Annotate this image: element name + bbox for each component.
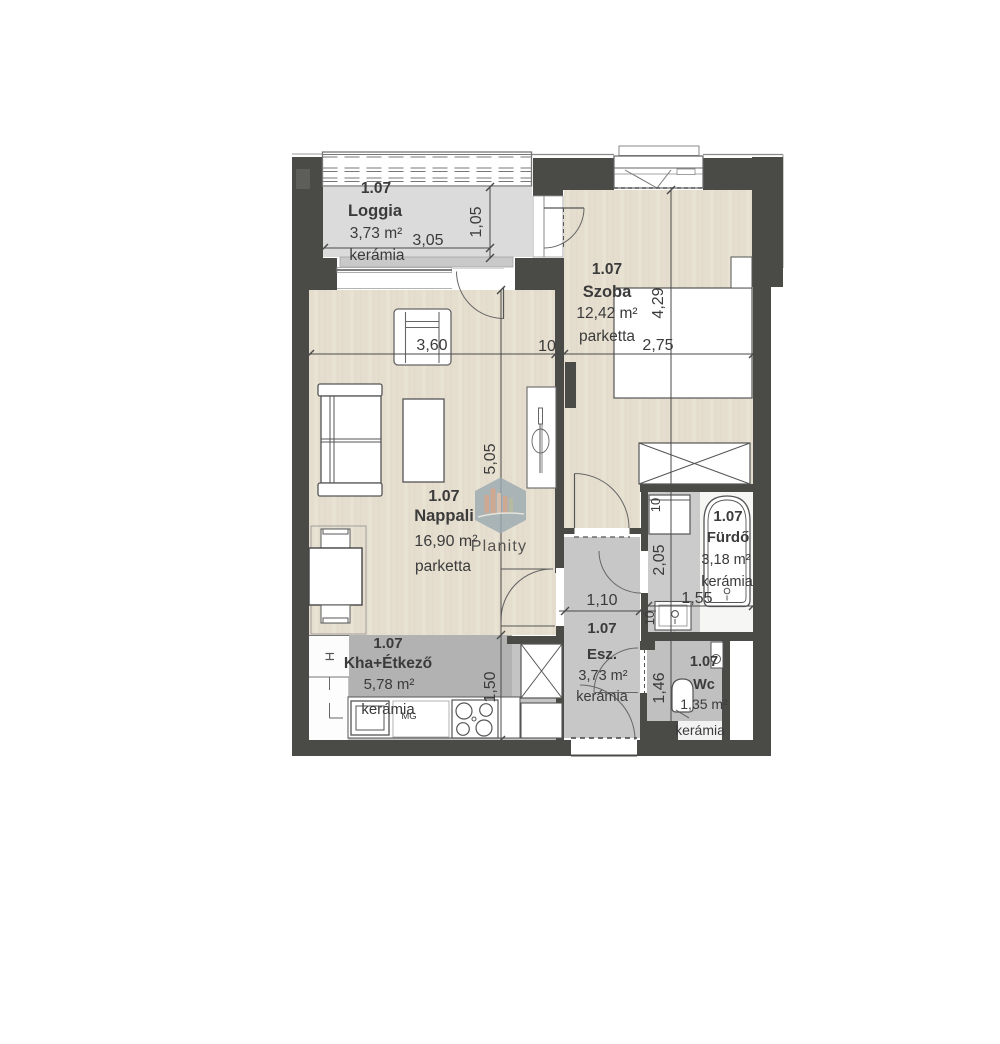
- svg-text:Esz.: Esz.: [587, 646, 617, 663]
- svg-text:parketta: parketta: [579, 328, 635, 345]
- svg-text:Planity: Planity: [471, 538, 527, 555]
- svg-text:kerámia: kerámia: [576, 689, 629, 705]
- svg-text:1,55: 1,55: [681, 590, 712, 607]
- svg-text:3,05: 3,05: [412, 232, 443, 249]
- svg-text:2,75: 2,75: [642, 337, 673, 354]
- svg-text:1.07: 1.07: [592, 261, 622, 278]
- svg-text:Kha+Étkező: Kha+Étkező: [344, 655, 432, 672]
- svg-text:1,50: 1,50: [482, 671, 499, 702]
- svg-text:2,05: 2,05: [651, 544, 668, 575]
- svg-text:Loggia: Loggia: [348, 202, 403, 220]
- svg-text:Szoba: Szoba: [583, 283, 632, 301]
- svg-text:5,78 m²: 5,78 m²: [364, 676, 415, 693]
- svg-text:1,10: 1,10: [586, 592, 617, 609]
- svg-text:10: 10: [642, 611, 657, 625]
- svg-text:3,73 m²: 3,73 m²: [578, 668, 627, 684]
- svg-text:kerámia: kerámia: [349, 247, 405, 264]
- svg-text:1,35 m²: 1,35 m²: [680, 696, 728, 712]
- svg-text:10: 10: [538, 338, 556, 355]
- svg-text:1.07: 1.07: [713, 508, 742, 525]
- svg-text:1.07: 1.07: [587, 620, 616, 637]
- svg-text:Wc: Wc: [693, 677, 715, 693]
- svg-text:kerámia: kerámia: [675, 722, 725, 738]
- svg-text:3,18 m²: 3,18 m²: [701, 552, 750, 568]
- svg-text:16,90 m²: 16,90 m²: [414, 533, 478, 550]
- svg-text:3,60: 3,60: [416, 337, 447, 354]
- svg-text:kerámia: kerámia: [361, 701, 415, 718]
- svg-text:1,05: 1,05: [468, 206, 485, 237]
- svg-text:12,42 m²: 12,42 m²: [576, 305, 637, 322]
- svg-text:kerámia: kerámia: [701, 574, 754, 590]
- svg-text:Fürdő: Fürdő: [707, 529, 750, 546]
- svg-text:parketta: parketta: [415, 558, 471, 575]
- svg-text:10: 10: [648, 498, 663, 512]
- svg-text:5,05: 5,05: [482, 443, 499, 474]
- svg-text:1,46: 1,46: [651, 672, 668, 703]
- svg-text:Nappali: Nappali: [414, 507, 474, 525]
- svg-text:1.07: 1.07: [428, 488, 459, 505]
- svg-text:1.07: 1.07: [361, 180, 391, 197]
- svg-text:3,73 m²: 3,73 m²: [350, 225, 403, 242]
- svg-text:4,29: 4,29: [650, 287, 667, 318]
- svg-text:1.07: 1.07: [690, 654, 718, 670]
- svg-text:1.07: 1.07: [373, 635, 402, 652]
